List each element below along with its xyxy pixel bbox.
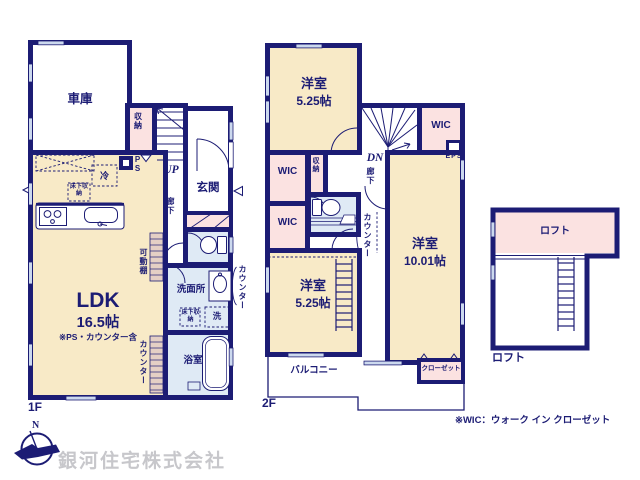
ldk-size-label: 16.5帖 [58,315,138,332]
room-toilet-2f [306,192,361,237]
loft-room-label: ロフト [525,226,585,238]
wic-left-lower-label: WIC [267,217,308,229]
underfloor-storage-ldk-label: 床下収納 [68,184,90,198]
room-toilet-1f [183,227,233,267]
company-watermark: 銀河住宅株式会社 [58,446,226,473]
balcony-label: バルコニー [283,366,345,377]
hallway-2f-label: 廊下 [366,167,374,185]
underfloor-storage-washroom-label: 床下収納 [181,310,200,324]
wic-left-upper-label: WIC [267,166,308,178]
eps-label: EPS [440,153,468,161]
pipe-space-box [119,156,133,170]
loft-ladder-icon [558,257,574,331]
movable-shelf-label: 可動棚 [139,248,147,275]
counter-ldk-label: カウンター [139,340,147,385]
north-label: N [32,420,39,432]
floor2-label: 2F [262,397,276,411]
room-entrance [183,106,233,216]
room-2f-top-size-label: 5.25帖 [284,95,344,109]
ldk-label: LDK [58,289,138,313]
closet-label: クローゼット [421,365,461,372]
storage-2f-label: 収納 [312,157,319,173]
laundry-label: 洗 [205,312,229,322]
room-washroom [163,263,233,335]
hallway-1f-label: 廊下 [166,197,174,215]
room-2f-bottom-size-label: 5.25帖 [283,297,343,311]
staircase-2f [357,103,422,155]
loft-floor-label: ロフト [492,352,525,365]
room-2f-top-name-label: 洋室 [288,77,340,92]
up-label: UP [159,164,183,177]
counter-right-label: カウンター [238,265,246,310]
ps-label: PS [133,155,141,173]
room-2f-right-size-label: 10.01帖 [391,255,459,269]
storage-1f-label: 収納 [134,112,142,130]
washroom-label: 洗面所 [168,285,214,296]
floor1-label: 1F [28,401,42,415]
counter-2f-label: カウンター [363,213,371,258]
wic-left-upper [265,150,310,206]
room-2f-right-name-label: 洋室 [395,237,455,252]
fridge-label: 冷 [92,171,117,181]
wic-note-label: ※WIC：ウォーク イン クローゼット [455,416,610,427]
garage-label: 車庫 [50,92,110,106]
floor-plan: 車庫 収納 UP 玄関 廊下 冷 PS 床下収納 LDK 16.5帖 ※PS・カ… [0,0,640,480]
compass-icon [14,431,60,465]
bathroom-label: 浴室 [171,356,215,367]
room-2f-bottom-name-label: 洋室 [287,279,339,294]
wic-top-right-label: WIC [418,120,464,132]
entrance-label: 玄関 [189,182,227,195]
dn-label: DN [363,152,387,165]
